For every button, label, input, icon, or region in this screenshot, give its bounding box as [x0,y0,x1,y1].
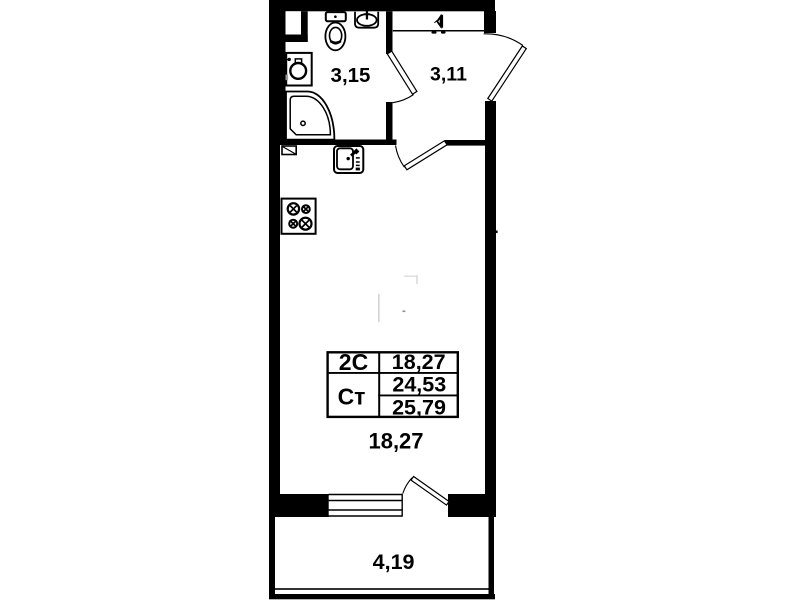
svg-text:25,79: 25,79 [392,396,446,420]
svg-text:Ст: Ст [338,384,366,410]
svg-text:18,27: 18,27 [392,350,446,374]
svg-text:3,15: 3,15 [331,64,371,87]
svg-text:18,27: 18,27 [368,429,423,454]
svg-text:24,53: 24,53 [392,373,446,397]
svg-text:4,19: 4,19 [373,550,415,574]
svg-text:3,11: 3,11 [430,64,467,86]
svg-text:2С: 2С [339,349,368,375]
